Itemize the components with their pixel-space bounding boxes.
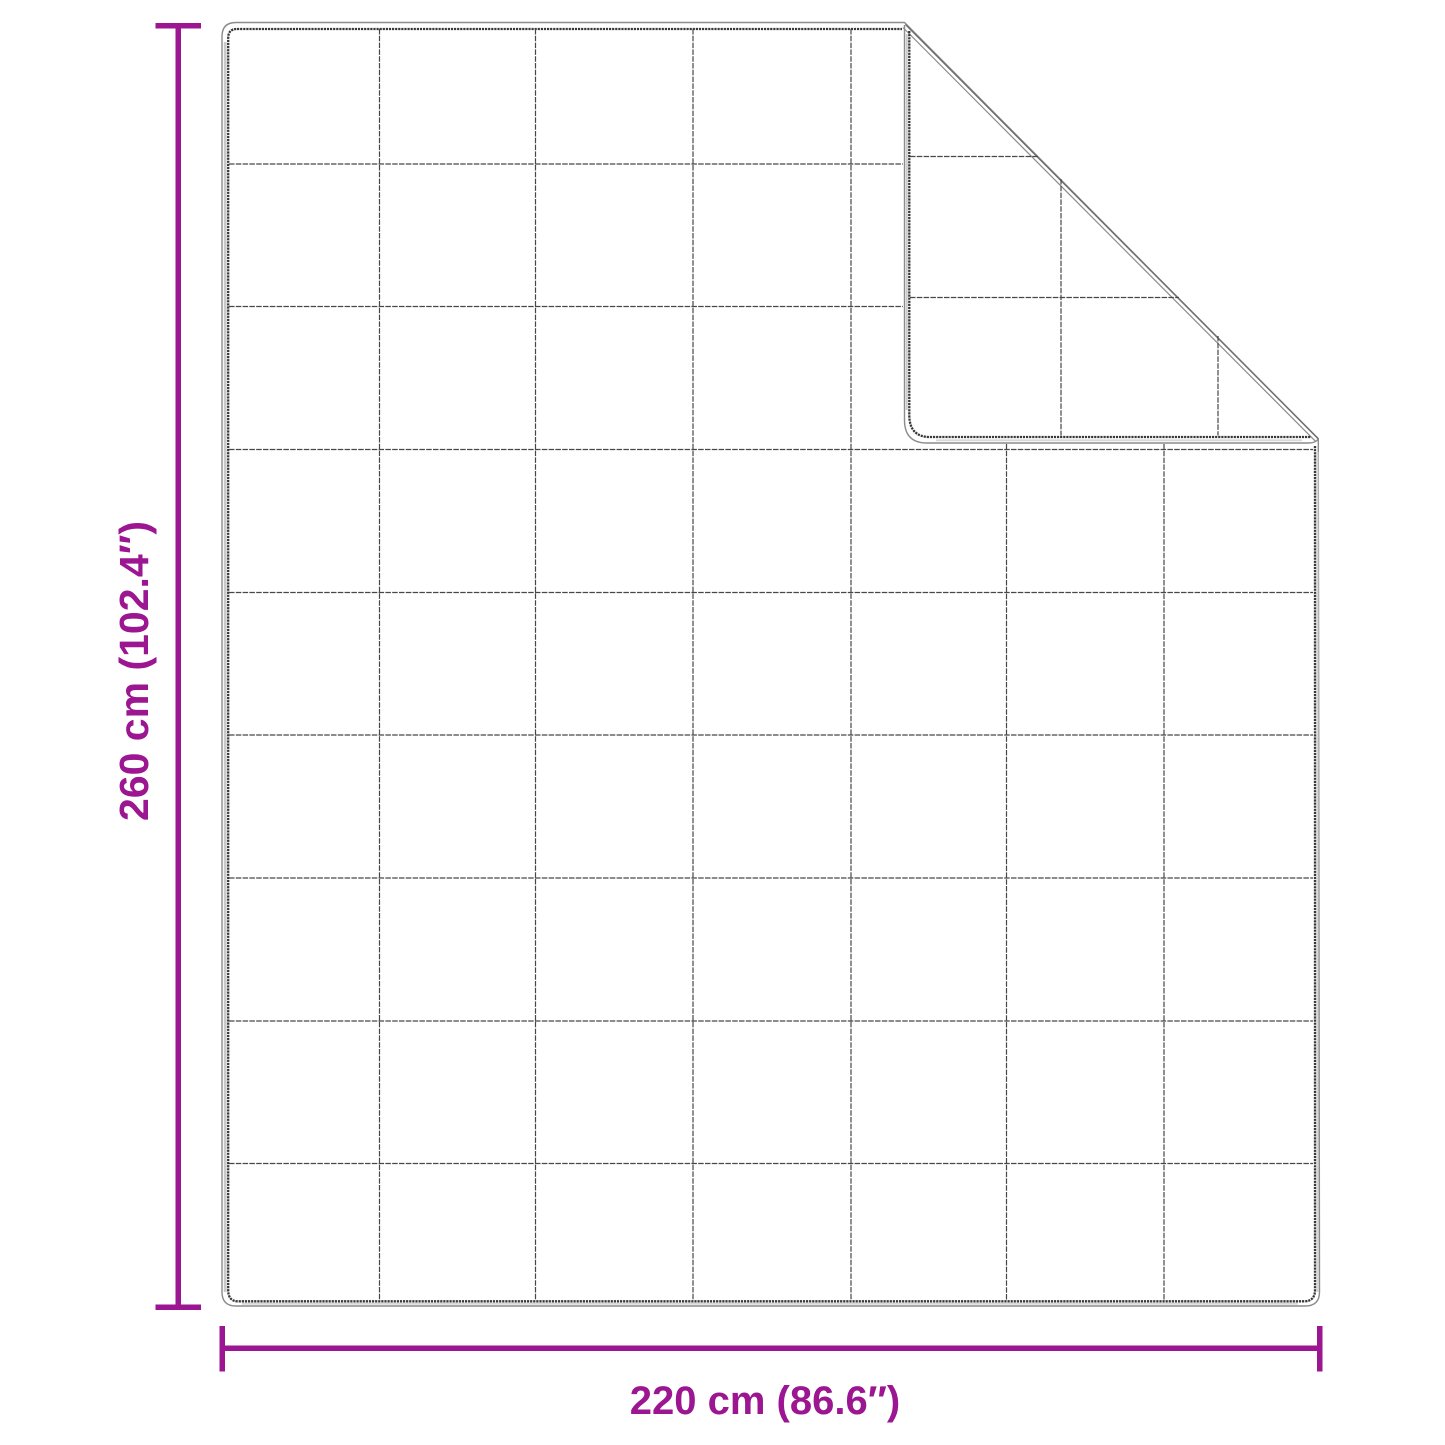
svg-text:260 cm (102.4″): 260 cm (102.4″): [111, 521, 157, 821]
svg-text:220 cm (86.6″): 220 cm (86.6″): [630, 1379, 900, 1423]
